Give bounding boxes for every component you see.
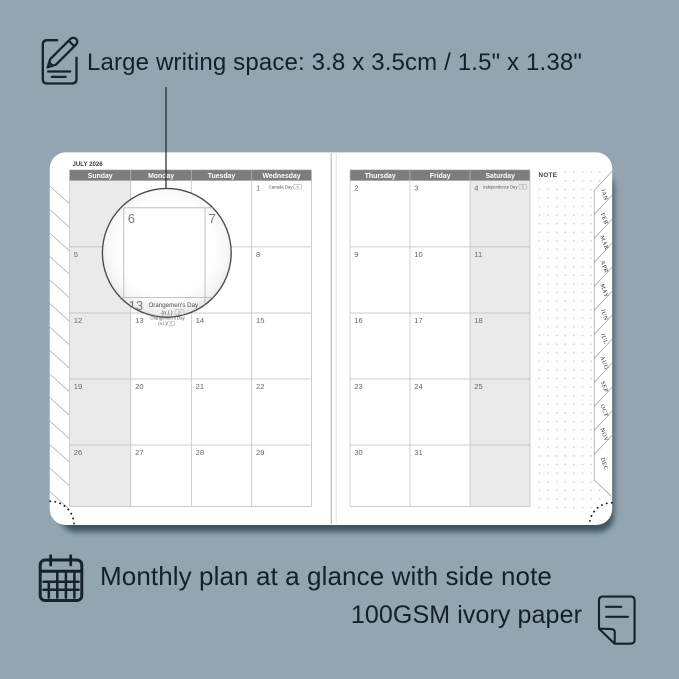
- svg-text:19: 19: [74, 382, 82, 391]
- svg-text:8: 8: [256, 250, 260, 259]
- svg-text:10: 10: [414, 250, 422, 259]
- svg-text:3: 3: [414, 184, 418, 193]
- svg-text:7: 7: [209, 211, 216, 226]
- svg-text:Saturday: Saturday: [485, 173, 515, 180]
- svg-text:Orangemen's Day: Orangemen's Day: [148, 302, 199, 309]
- svg-text:20: 20: [135, 382, 143, 391]
- svg-text:9: 9: [354, 250, 358, 259]
- svg-text:18: 18: [474, 316, 482, 325]
- svg-text:JULY 2026: JULY 2026: [73, 161, 104, 168]
- svg-text:12: 12: [74, 316, 82, 325]
- svg-text:23: 23: [354, 382, 362, 391]
- svg-text:Wednesday: Wednesday: [263, 173, 301, 180]
- svg-text:2: 2: [354, 184, 358, 193]
- svg-text:16: 16: [354, 316, 362, 325]
- svg-text:15: 15: [256, 316, 264, 325]
- svg-text:31: 31: [414, 448, 422, 457]
- svg-text:11: 11: [474, 250, 482, 259]
- svg-text:25: 25: [474, 382, 482, 391]
- svg-text:26: 26: [74, 448, 82, 457]
- svg-text:Independence Day: Independence Day: [483, 184, 518, 189]
- svg-text:27: 27: [135, 448, 143, 457]
- svg-text:NOTE: NOTE: [539, 172, 558, 179]
- svg-text:21: 21: [196, 382, 204, 391]
- svg-text:Monday: Monday: [148, 173, 174, 180]
- svg-text:17: 17: [414, 316, 422, 325]
- svg-text:24: 24: [414, 382, 422, 391]
- svg-text:28: 28: [196, 448, 204, 457]
- svg-text:13: 13: [135, 316, 143, 325]
- svg-text:5: 5: [74, 250, 78, 259]
- svg-text:29: 29: [256, 448, 264, 457]
- svg-text:(n.l.): (n.l.): [161, 310, 172, 316]
- svg-text:Thursday: Thursday: [365, 173, 396, 180]
- svg-text:22: 22: [256, 382, 264, 391]
- svg-text:4: 4: [474, 184, 478, 193]
- svg-text:Friday: Friday: [430, 173, 451, 180]
- svg-text:Canada Day: Canada Day: [269, 185, 294, 190]
- svg-text:Sunday: Sunday: [88, 173, 113, 180]
- svg-text:6: 6: [128, 211, 135, 226]
- svg-text:1: 1: [256, 184, 260, 193]
- svg-text:(n.l.): (n.l.): [158, 321, 167, 326]
- svg-text:30: 30: [354, 448, 362, 457]
- svg-text:14: 14: [196, 316, 204, 325]
- svg-text:Tuesday: Tuesday: [208, 173, 236, 180]
